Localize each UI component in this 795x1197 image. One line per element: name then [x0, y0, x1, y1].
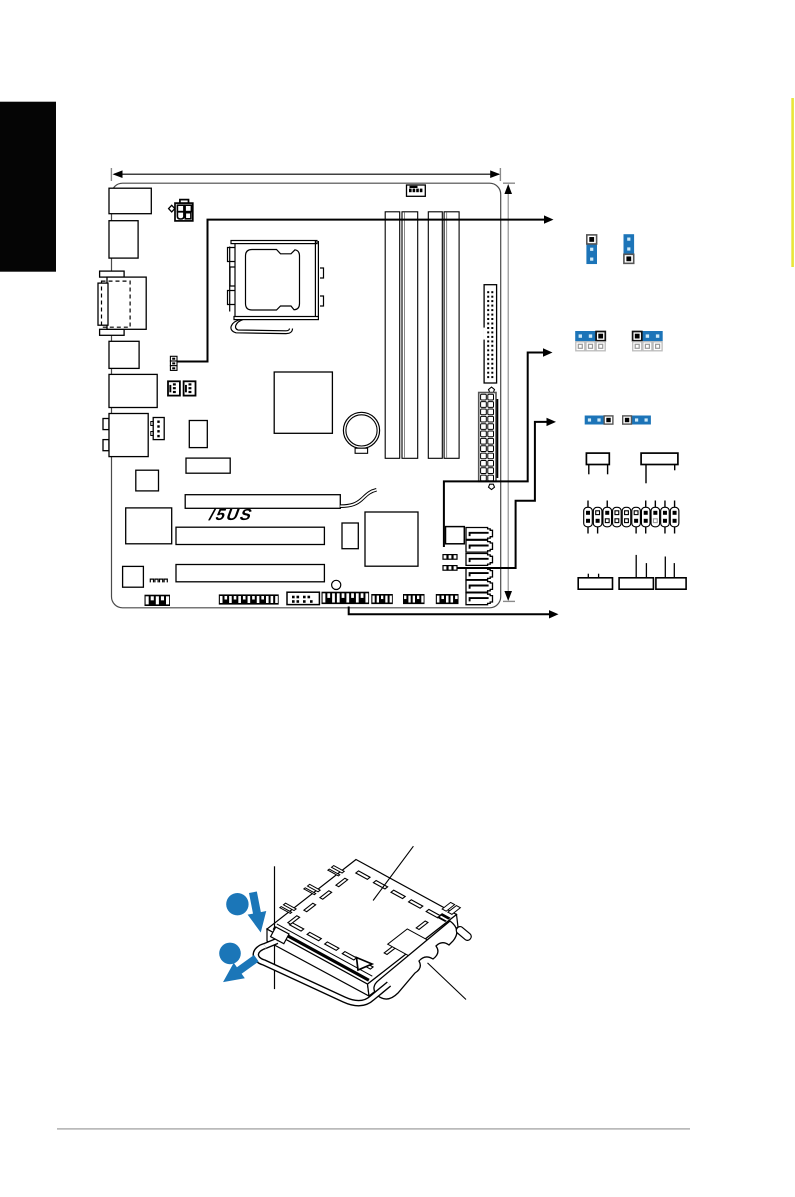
svg-text:/5US: /5US — [207, 505, 257, 523]
